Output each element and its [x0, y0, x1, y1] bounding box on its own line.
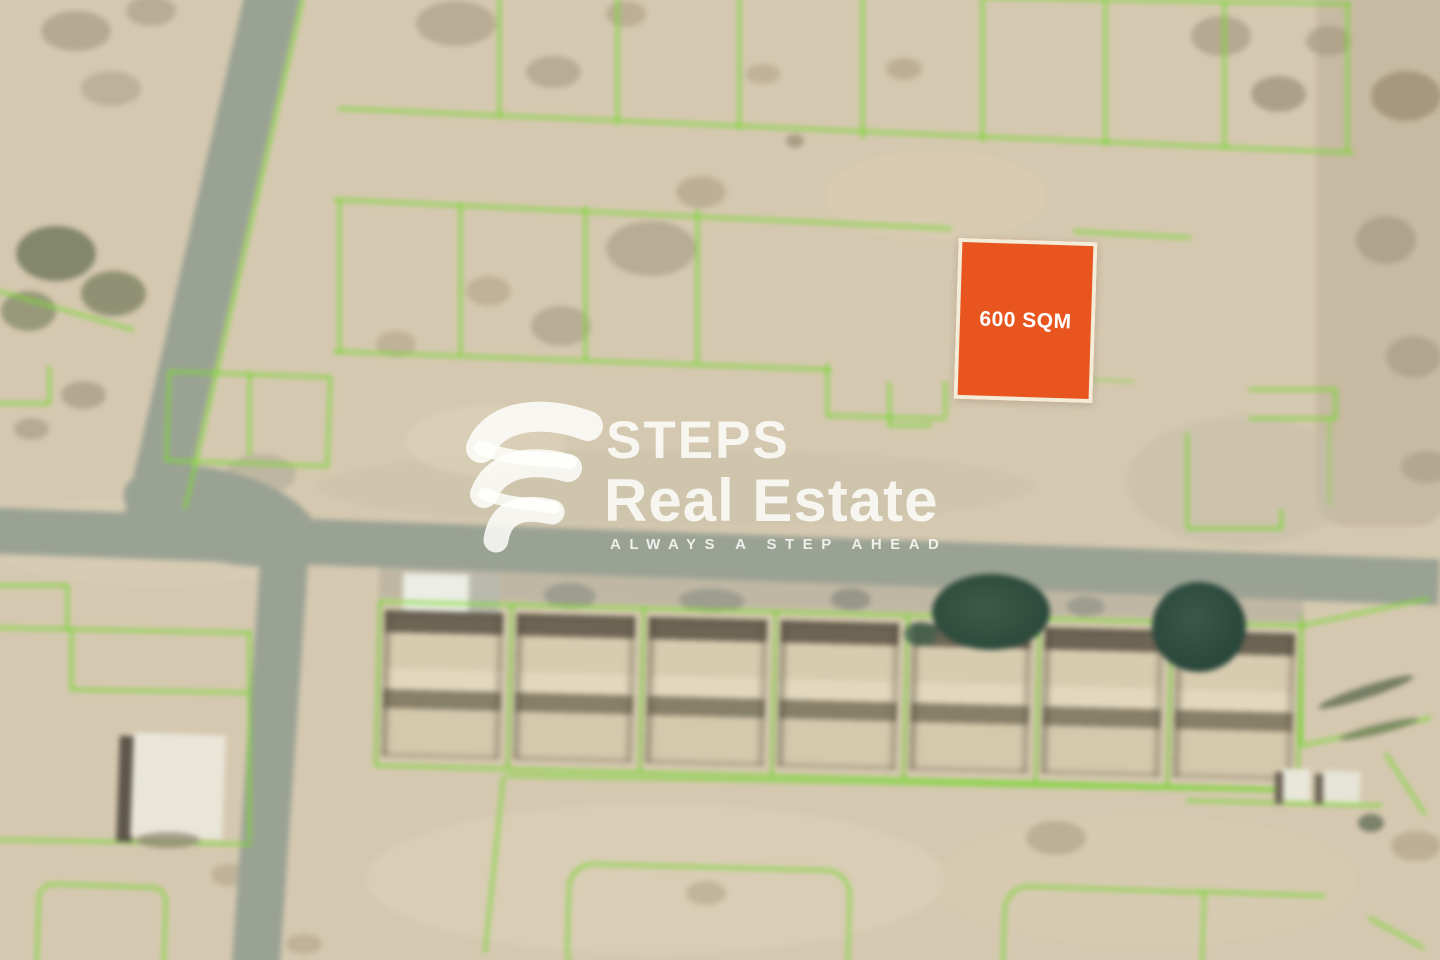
plot-area-label: 600 SQM: [979, 307, 1072, 334]
brand-name-top: STEPS: [606, 410, 790, 471]
brand-name-bottom: Real Estate: [604, 466, 939, 535]
steps-logo-icon: [456, 400, 606, 560]
listing-map-image: 600 SQM STEPS Real Estate ALWAYS A STEP …: [0, 0, 1440, 960]
overlay-layer: 600 SQM STEPS Real Estate ALWAYS A STEP …: [0, 0, 1440, 960]
brand-tagline: ALWAYS A STEP AHEAD: [610, 536, 947, 553]
highlighted-plot: 600 SQM: [954, 238, 1098, 403]
